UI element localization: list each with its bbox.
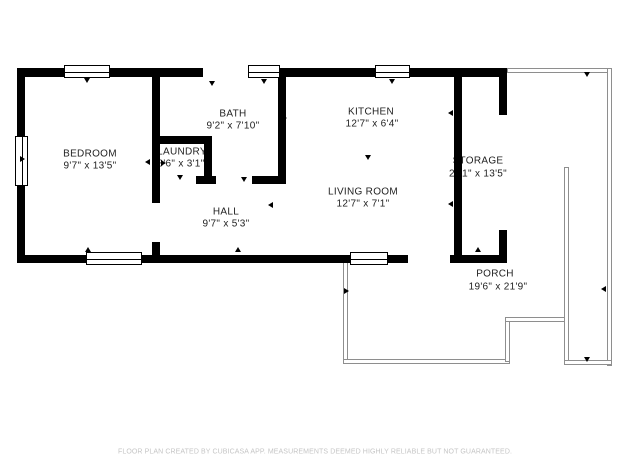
room-label-hall-dims: 9'7" x 5'3" <box>202 219 249 230</box>
opening-arrow-icon <box>282 115 287 121</box>
wall-top-left <box>17 68 203 77</box>
room-label-laundry-name: LAUNDRY <box>157 147 207 158</box>
room-label-porch-dims: 19'6" x 21'9" <box>469 282 528 293</box>
opening-arrow-icon <box>365 155 371 160</box>
opening-arrow-icon <box>601 286 606 292</box>
room-label-living-room-dims: 12'7" x 7'1" <box>337 199 390 210</box>
room-label-bedroom-dims: 9'7" x 13'5" <box>64 161 117 172</box>
opening-arrow-icon <box>344 288 349 294</box>
wall-storage-right-bottom <box>499 230 507 255</box>
porch-rail-bottom-left <box>343 359 510 364</box>
room-label-kitchen-dims: 12'7" x 6'4" <box>346 119 399 130</box>
window-living-bottom <box>350 252 388 265</box>
opening-arrow-icon <box>279 101 284 107</box>
opening-arrow-icon <box>20 156 25 162</box>
opening-arrow-icon <box>209 81 215 86</box>
porch-rail-top <box>507 68 612 73</box>
opening-arrow-icon <box>161 160 166 166</box>
window-kitchen-top <box>375 65 410 78</box>
wall-storage-left <box>454 77 462 255</box>
window-bedroom-top <box>64 65 110 78</box>
room-label-bedroom-name: BEDROOM <box>63 149 117 160</box>
room-label-porch-name: PORCH <box>476 269 514 280</box>
wall-laundry-top <box>152 136 212 144</box>
opening-arrow-icon <box>448 201 453 207</box>
opening-arrow-icon <box>235 247 241 252</box>
opening-arrow-icon <box>241 177 247 182</box>
opening-arrow-icon <box>584 357 590 362</box>
porch-rail-inner <box>564 167 569 364</box>
room-label-kitchen-name: KITCHEN <box>348 107 394 118</box>
room-label-hall-name: HALL <box>213 207 239 218</box>
opening-arrow-icon <box>85 247 91 252</box>
wall-bottom-right <box>450 255 507 263</box>
porch-rail-right <box>607 68 612 366</box>
room-label-living-room-name: LIVING ROOM <box>328 187 398 198</box>
opening-arrow-icon <box>177 175 183 180</box>
opening-arrow-icon <box>145 159 150 165</box>
wall-laundry-door-stub <box>196 176 216 184</box>
porch-rail-notch-horizontal <box>505 317 567 322</box>
opening-arrow-icon <box>584 72 590 77</box>
window-bedroom-bottom <box>86 252 142 265</box>
room-label-bath-name: BATH <box>219 109 246 120</box>
porch-rail-left <box>343 262 348 362</box>
wall-storage-right-top <box>499 77 507 115</box>
footer-disclaimer: FLOOR PLAN CREATED BY CUBICASA APP. MEAS… <box>118 449 512 456</box>
porch-rail-notch-vertical <box>505 320 510 362</box>
opening-arrow-icon <box>475 247 481 252</box>
opening-arrow-icon <box>389 79 395 84</box>
wall-bath-right <box>278 77 286 184</box>
wall-bedroom-lower <box>152 242 160 255</box>
opening-arrow-icon <box>261 79 267 84</box>
window-bath-top <box>248 65 280 78</box>
opening-arrow-icon <box>448 110 453 116</box>
opening-arrow-icon <box>268 202 273 208</box>
opening-arrow-icon <box>84 78 90 83</box>
room-label-bath-dims: 9'2" x 7'10" <box>207 121 260 132</box>
floor-plan: BEDROOM 9'7" x 13'5" BATH 9'2" x 7'10" L… <box>0 0 631 473</box>
